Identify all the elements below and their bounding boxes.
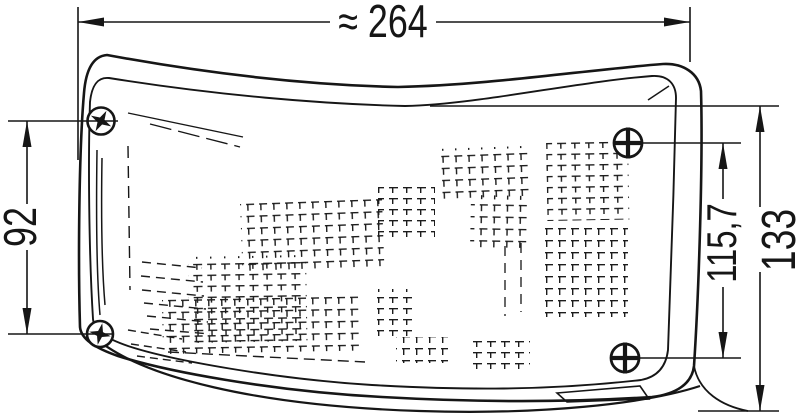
lens-texture-patch — [162, 295, 363, 354]
lens-texture-patch — [396, 337, 448, 363]
lamp-dimension-drawing: ≈ 264 92 115,7 133 — [0, 0, 800, 417]
lens-texture-patch — [470, 340, 530, 370]
arrowhead-up-icon — [756, 106, 765, 132]
arrowhead-left-icon — [78, 18, 104, 27]
lens-dashed-vertical-mid — [505, 243, 521, 316]
technical-drawing-canvas: ≈ 264 92 115,7 133 — [0, 0, 800, 417]
label-right-screw-spacing: 115,7 — [698, 203, 745, 283]
lens-texture-patch — [378, 187, 435, 241]
lens-left-highlight — [97, 150, 105, 315]
arrowhead-down-icon — [23, 308, 32, 334]
lens-texture-patch — [542, 224, 628, 317]
lens-texture-patch — [377, 289, 416, 338]
arrowhead-up-icon — [719, 143, 728, 169]
arrowhead-up-icon — [23, 121, 32, 147]
label-overall-width: ≈ 264 — [338, 0, 428, 47]
corner-slash-mark — [648, 86, 669, 100]
lamp-bottom-right-corner — [694, 366, 748, 411]
lens-texture-patch — [470, 195, 529, 252]
label-overall-height: 133 — [753, 209, 800, 271]
lens-texture — [128, 138, 629, 370]
arrowhead-down-icon — [719, 332, 728, 358]
arrowhead-down-icon — [756, 385, 765, 411]
arrowhead-right-icon — [664, 18, 690, 27]
lens-texture-patch — [437, 146, 531, 199]
lens-dashed-vertical-left — [128, 146, 130, 290]
label-left-screw-spacing: 92 — [0, 207, 46, 247]
